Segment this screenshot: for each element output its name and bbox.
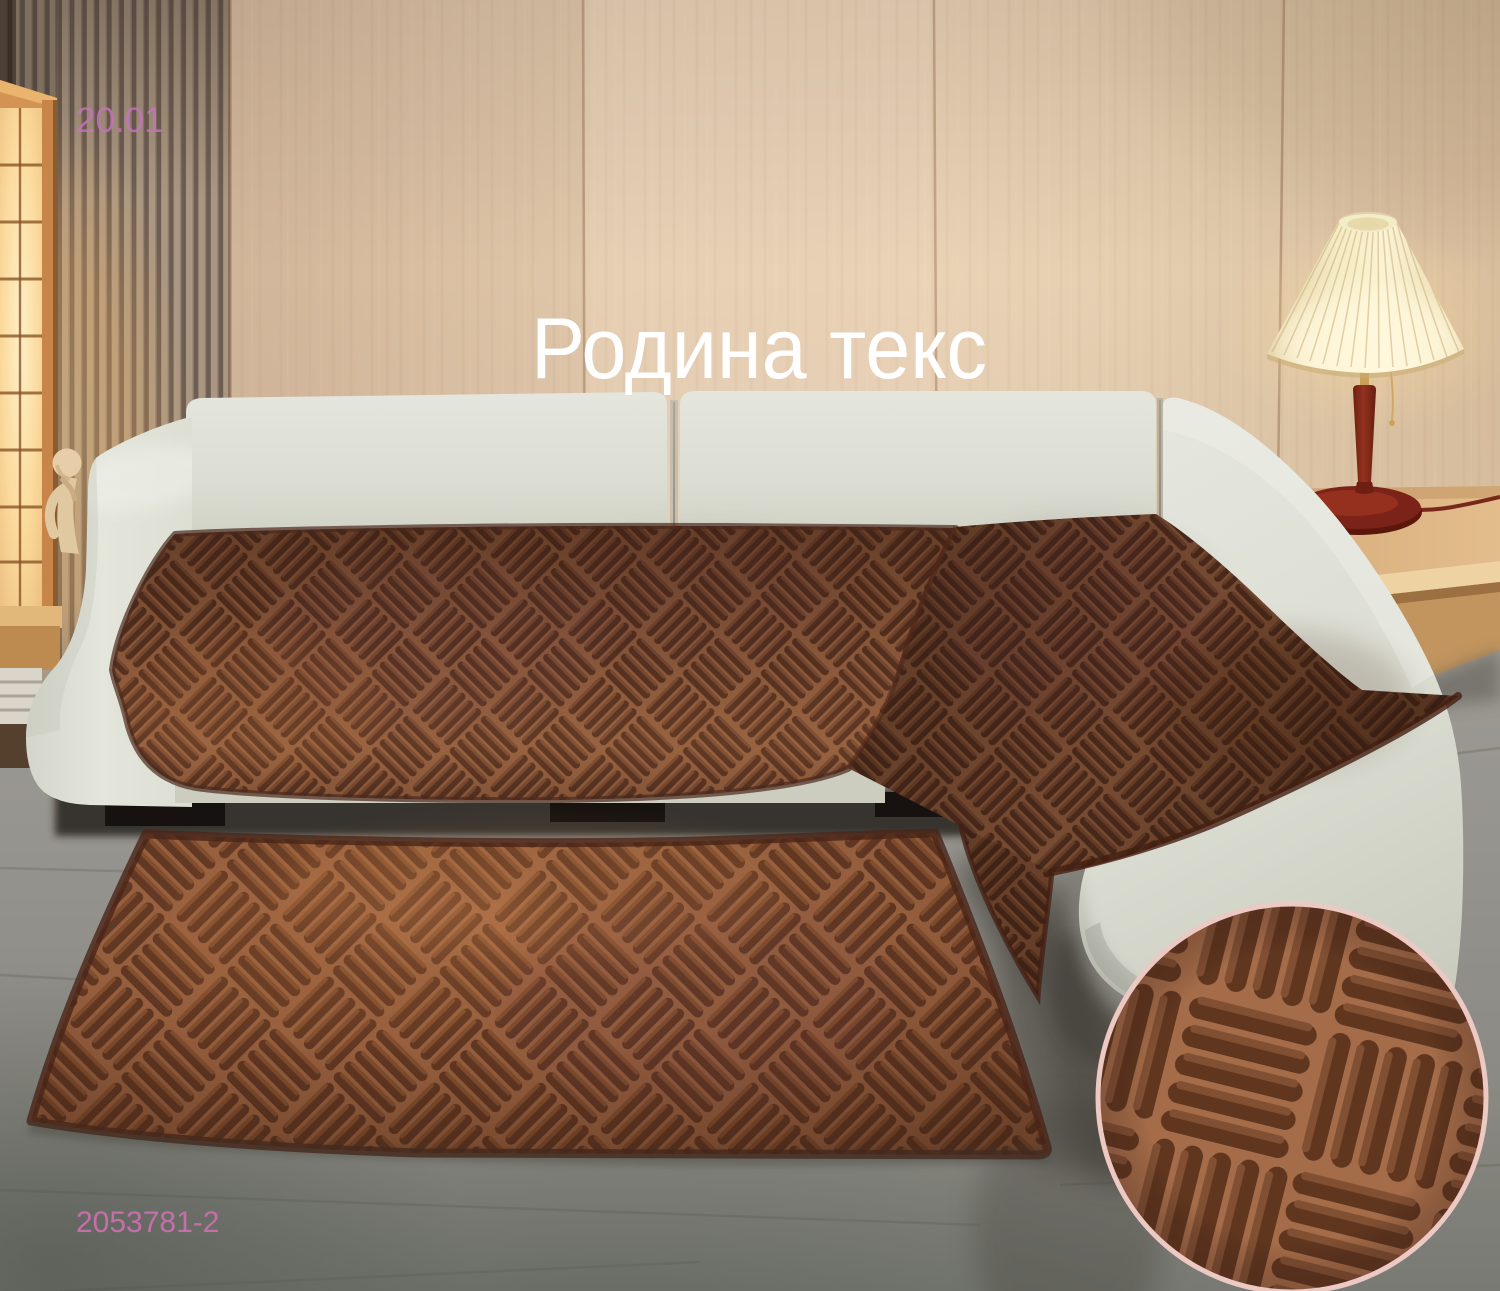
svg-text:2053781-2: 2053781-2 (76, 1206, 219, 1239)
svg-text:Родина текс: Родина текс (531, 301, 987, 397)
svg-text:20.01: 20.01 (76, 101, 164, 140)
